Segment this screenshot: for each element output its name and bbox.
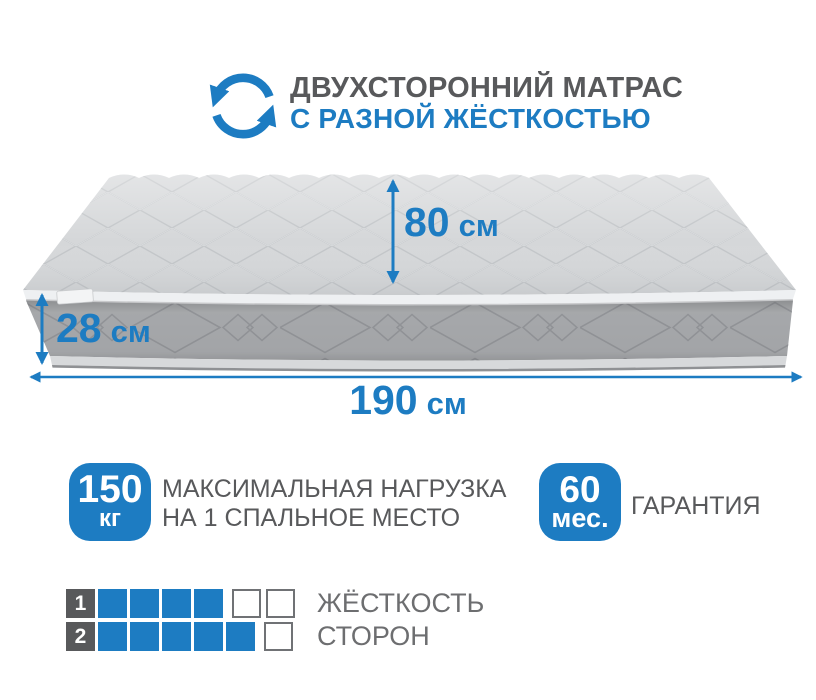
length-unit: см — [427, 386, 467, 421]
side-number-badge: 1 — [66, 589, 95, 618]
mattress-infographic: ДВУХСТОРОННИЙ МАТРАС С РАЗНОЙ ЖЁСТКОСТЬЮ — [0, 0, 816, 700]
header-titles: ДВУХСТОРОННИЙ МАТРАС С РАЗНОЙ ЖЁСТКОСТЬЮ — [290, 73, 683, 133]
firmness-scale-side1 — [95, 589, 295, 618]
firmness-row-side2: 2 СТОРОН — [66, 622, 546, 651]
height-dimension-label: 28см — [56, 305, 151, 352]
height-unit: см — [111, 314, 151, 349]
firmness-row-side1: 1 ЖЁСТКОСТЬ — [66, 589, 546, 618]
warranty-caption-line1: ГАРАНТИЯ — [631, 492, 761, 521]
firmness-cell-filled — [194, 589, 223, 618]
length-value: 190 — [349, 377, 417, 423]
max-load-caption-line2: НА 1 СПАЛЬНОЕ МЕСТО — [162, 504, 506, 533]
max-load-caption: МАКСИМАЛЬНАЯ НАГРУЗКА НА 1 СПАЛЬНОЕ МЕСТ… — [162, 475, 506, 533]
side-number-badge: 2 — [66, 622, 95, 651]
firmness-indicator: 1 ЖЁСТКОСТЬ 2 СТОРОН — [66, 589, 546, 655]
max-load-value: 150 — [77, 473, 142, 507]
height-value: 28 — [56, 305, 102, 351]
max-load-caption-line1: МАКСИМАЛЬНАЯ НАГРУЗКА — [162, 475, 506, 504]
page-title: ДВУХСТОРОННИЙ МАТРАС — [290, 73, 683, 103]
firmness-cell-empty — [232, 589, 261, 618]
firmness-cell-empty — [264, 622, 293, 651]
firmness-cell-filled — [226, 622, 255, 651]
page-subtitle: С РАЗНОЙ ЖЁСТКОСТЬЮ — [290, 104, 683, 133]
sides-label: СТОРОН — [317, 622, 430, 651]
width-unit: см — [459, 208, 499, 243]
width-dimension-label: 80см — [404, 199, 499, 246]
length-dimension-label: 190см — [298, 377, 518, 424]
warranty-unit: мес. — [551, 505, 608, 531]
firmness-cell-filled — [130, 622, 159, 651]
firmness-cell-empty — [266, 589, 295, 618]
firmness-cell-filled — [194, 622, 223, 651]
firmness-cell-filled — [98, 589, 127, 618]
firmness-cell-filled — [98, 622, 127, 651]
width-value: 80 — [404, 199, 450, 245]
firmness-cell-filled — [130, 589, 159, 618]
rotate-arrows-icon — [204, 66, 282, 146]
firmness-scale-side2 — [95, 622, 293, 651]
firmness-cell-filled — [162, 589, 191, 618]
max-load-unit: кг — [99, 507, 121, 531]
warranty-badge: 60 мес. — [539, 463, 621, 541]
firmness-cell-filled — [162, 622, 191, 651]
firmness-label: ЖЁСТКОСТЬ — [317, 589, 484, 618]
max-load-badge: 150 кг — [69, 463, 151, 541]
care-label-tag — [57, 289, 94, 304]
warranty-caption: ГАРАНТИЯ — [631, 492, 761, 521]
warranty-value: 60 — [559, 474, 600, 505]
